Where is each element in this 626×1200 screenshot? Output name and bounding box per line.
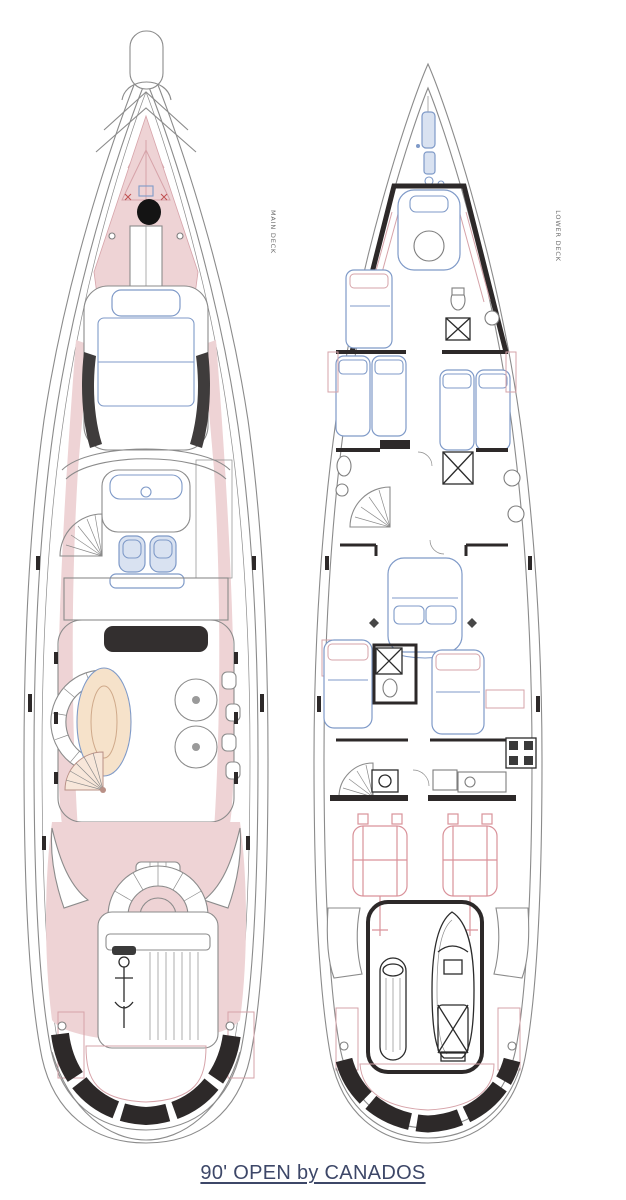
helm-bench [110,574,184,588]
page: MAIN DECK [0,0,626,1200]
wardrobe-x [443,452,473,484]
helm-console [102,470,190,532]
stove [506,738,536,768]
cabin-starboard-aft [432,650,484,734]
main-deck-plan: MAIN DECK [24,31,277,1143]
lower-deck-label: LOWER DECK [554,210,562,262]
tender [432,912,474,1061]
galley-appliance [372,770,398,792]
caption-link[interactable]: 90' OPEN by CANADOS [0,1162,626,1185]
master-bed [388,558,462,652]
crew-bunk [346,270,392,348]
garage-bench-port [327,908,362,978]
cabin-port-aft [324,640,372,728]
saloon-bar [104,626,208,652]
lower-deck-plan: LOWER DECK [314,64,562,1143]
life-raft [380,958,406,1060]
deck-plans-figure: MAIN DECK [0,0,626,1200]
garage-bench-starboard [494,908,529,978]
main-deck-label: MAIN DECK [269,210,277,254]
aft-sunpad [98,912,218,1048]
anchor-hatch [137,199,161,225]
